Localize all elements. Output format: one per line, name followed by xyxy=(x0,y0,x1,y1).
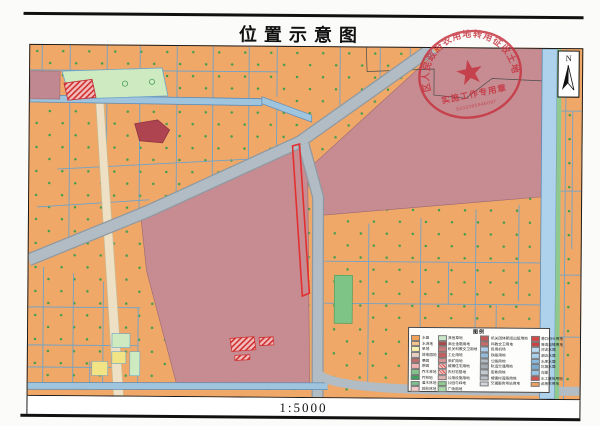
legend-column: 水田水浇地旱地其他园地果园茶园乔木林地竹林地灌木林地其他林地 xyxy=(411,335,438,392)
legend-item-label: 交通服务场站用地 xyxy=(490,381,519,387)
legend-item-label: 广场用地 xyxy=(448,386,463,392)
legend-swatch xyxy=(480,381,489,387)
legend-swatch xyxy=(530,381,539,387)
legend-item-label: 水田 xyxy=(421,335,428,341)
legend-item-label: 机关团体新闻出版用地 xyxy=(490,336,527,342)
hatched-project-parcel xyxy=(230,336,256,351)
legend-item-label: 其他园地 xyxy=(421,352,436,358)
hatched-parcel-topleft xyxy=(64,79,96,100)
scanned-sheet: 位置示意图 xyxy=(0,0,600,426)
north-arrow: N xyxy=(558,51,579,97)
small-parcel xyxy=(112,352,126,364)
legend-item-label: 工业用地 xyxy=(448,352,463,358)
legend-swatch xyxy=(411,386,420,392)
legend-item-label: 街巷用地 xyxy=(490,370,505,376)
legend-item-label: 民用机场 xyxy=(490,347,505,353)
legend-item-label: 旱地 xyxy=(421,346,428,352)
green-parcel xyxy=(334,275,352,323)
legend-item-label: 沟渠 xyxy=(541,370,548,376)
bottom-road xyxy=(28,384,328,388)
map-canvas: N 图例 水田水浇地旱地其他园地果园茶园乔木林地竹林地灌木林地其他林地其他草地商… xyxy=(27,44,584,400)
legend-item-label: 其他草地 xyxy=(448,335,463,341)
legend-swatch xyxy=(437,386,446,392)
legend-items: 水田水浇地旱地其他园地果园茶园乔木林地竹林地灌木林地其他林地其他草地商业金融用地… xyxy=(411,335,547,393)
legend-item-label: 湖泊水面 xyxy=(541,353,556,359)
small-parcel xyxy=(130,352,140,376)
legend-item: 交通服务场站用地 xyxy=(480,381,531,387)
legend-item-label: 乔木林地 xyxy=(421,369,436,375)
mauve-parcel-left xyxy=(30,71,60,99)
legend-column: 机关团体新闻出版用地科教文卫用地民用机场铁路用地公路用地轨道交通用地街巷用地城镇… xyxy=(480,335,531,392)
legend-item-label: 铁路用地 xyxy=(490,353,505,359)
legend-item-label: 港口码头用地 xyxy=(541,336,563,342)
legend-item-label: 农村宅基地 xyxy=(448,369,466,375)
small-parcel xyxy=(92,361,108,375)
legend-item: 广场用地 xyxy=(437,386,480,392)
legend-column: 港口码头用地管道运输用地河流水面湖泊水面水库水面坑塘水面沟渠水工建筑用地设施农用… xyxy=(530,336,565,393)
hatched-project-parcel xyxy=(235,354,250,360)
legend: 图例 水田水浇地旱地其他园地果园茶园乔木林地竹林地灌木林地其他林地其他草地商业金… xyxy=(408,327,551,393)
legend-item: 设施农用地 xyxy=(530,381,565,387)
hatched-project-parcel xyxy=(259,337,274,346)
sheet-top-border xyxy=(24,12,584,19)
legend-item-label: 设施农用地 xyxy=(541,381,559,387)
legend-column: 其他草地商业金融用地机关科教文卫用地工业用地采矿用地城镇住宅用地农村宅基地公用设… xyxy=(437,335,480,392)
small-parcel xyxy=(112,334,130,348)
legend-item-label: 其他林地 xyxy=(421,386,436,392)
north-arrow-label: N xyxy=(566,53,572,63)
legend-item-label: 河流水面 xyxy=(541,347,556,353)
legend-item: 其他林地 xyxy=(411,386,438,392)
